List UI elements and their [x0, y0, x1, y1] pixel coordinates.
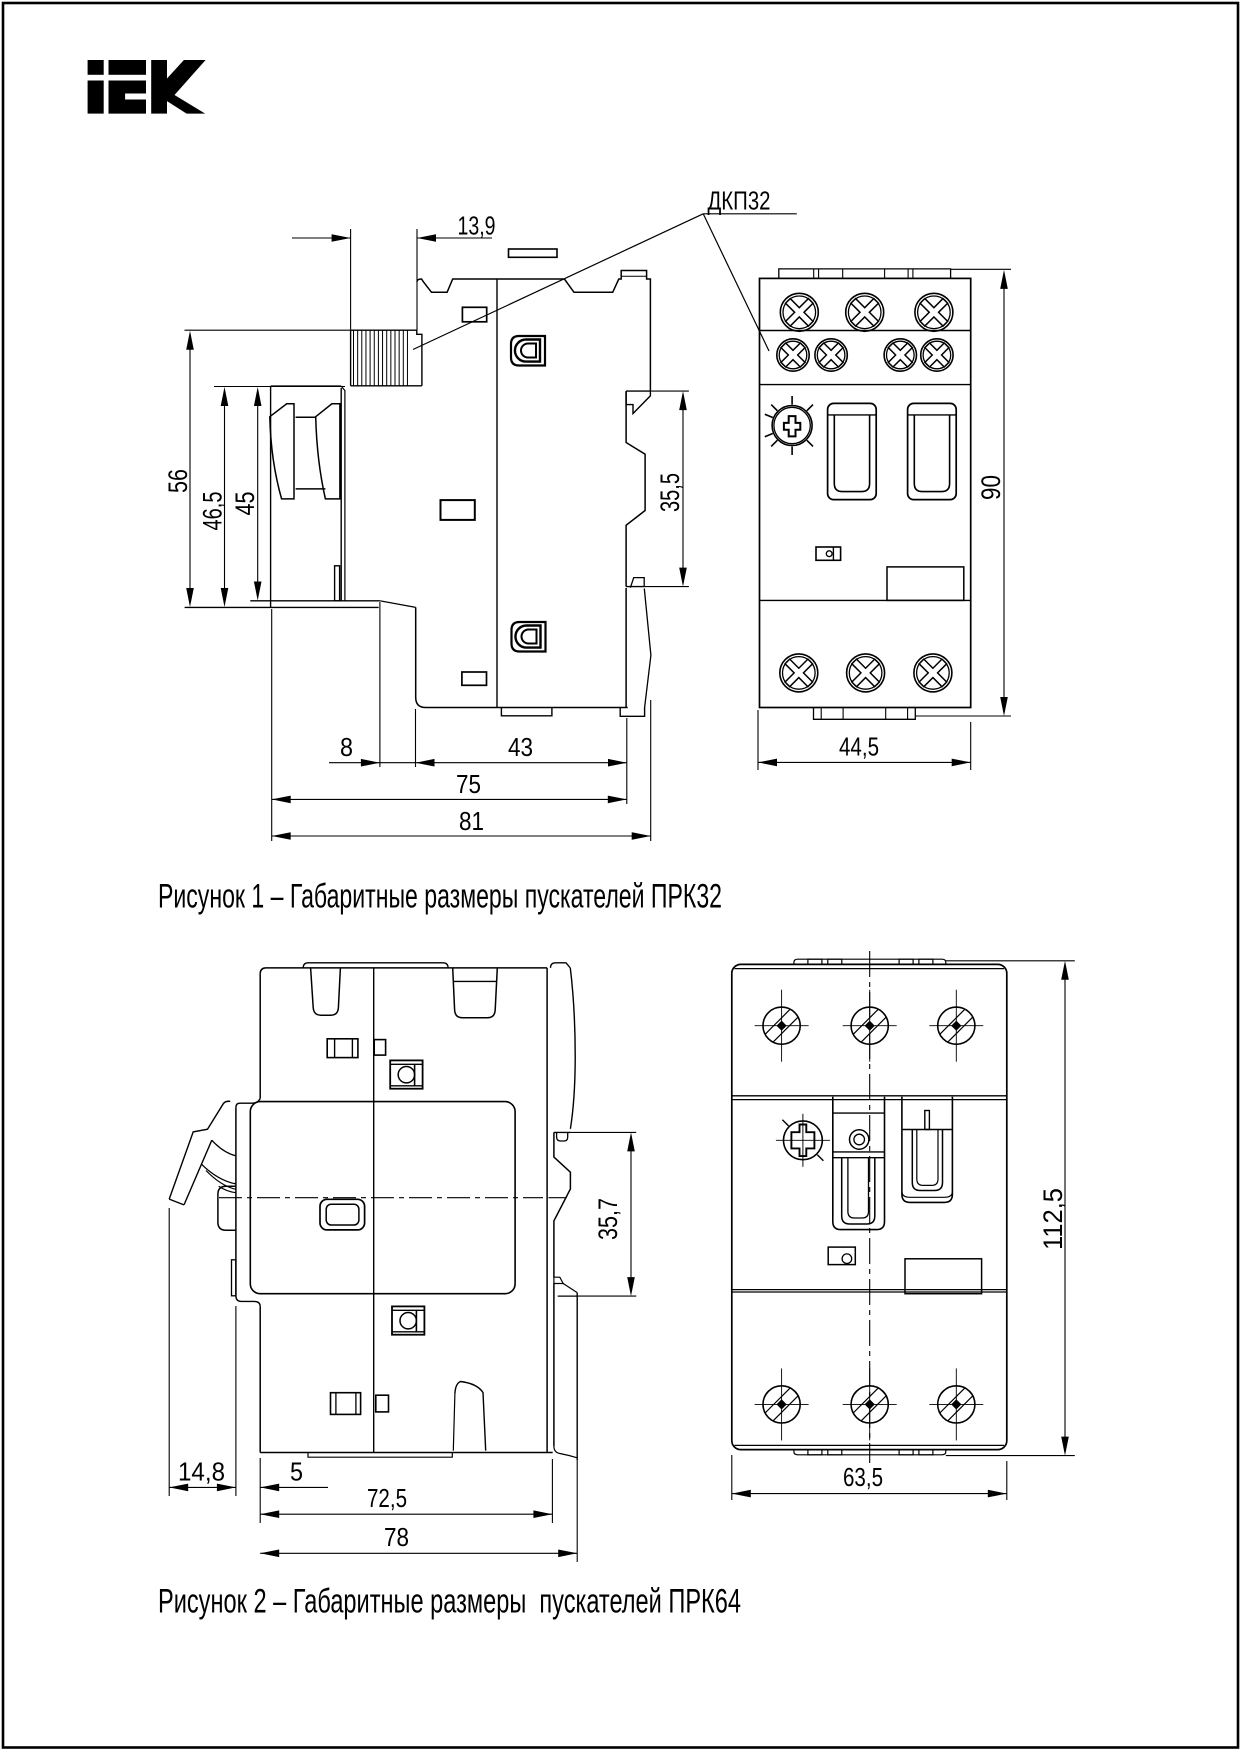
svg-text:112,5: 112,5: [1038, 1188, 1068, 1250]
svg-text:56: 56: [163, 469, 193, 493]
svg-text:45: 45: [230, 492, 260, 516]
svg-text:13,9: 13,9: [458, 211, 496, 241]
svg-text:78: 78: [384, 1522, 409, 1552]
svg-text:43: 43: [508, 732, 533, 762]
svg-text:Рисунок 1 – Габаритные размеры: Рисунок 1 – Габаритные размеры пускателе…: [158, 878, 722, 916]
svg-text:14,8: 14,8: [178, 1457, 225, 1487]
svg-text:35,5: 35,5: [655, 473, 685, 512]
svg-text:44,5: 44,5: [839, 732, 879, 762]
svg-text:90: 90: [976, 475, 1006, 500]
svg-text:35,7: 35,7: [593, 1198, 623, 1240]
svg-text:81: 81: [459, 806, 484, 836]
svg-text:46,5: 46,5: [198, 492, 228, 531]
svg-text:63,5: 63,5: [843, 1462, 883, 1492]
svg-text:75: 75: [456, 769, 481, 799]
svg-text:5: 5: [290, 1457, 303, 1487]
svg-text:8: 8: [340, 732, 353, 762]
svg-text:Рисунок 2 – Габаритные размеры: Рисунок 2 – Габаритные размеры пускателе…: [158, 1583, 741, 1621]
svg-text:ДКП32: ДКП32: [708, 186, 771, 216]
svg-text:72,5: 72,5: [367, 1483, 407, 1513]
